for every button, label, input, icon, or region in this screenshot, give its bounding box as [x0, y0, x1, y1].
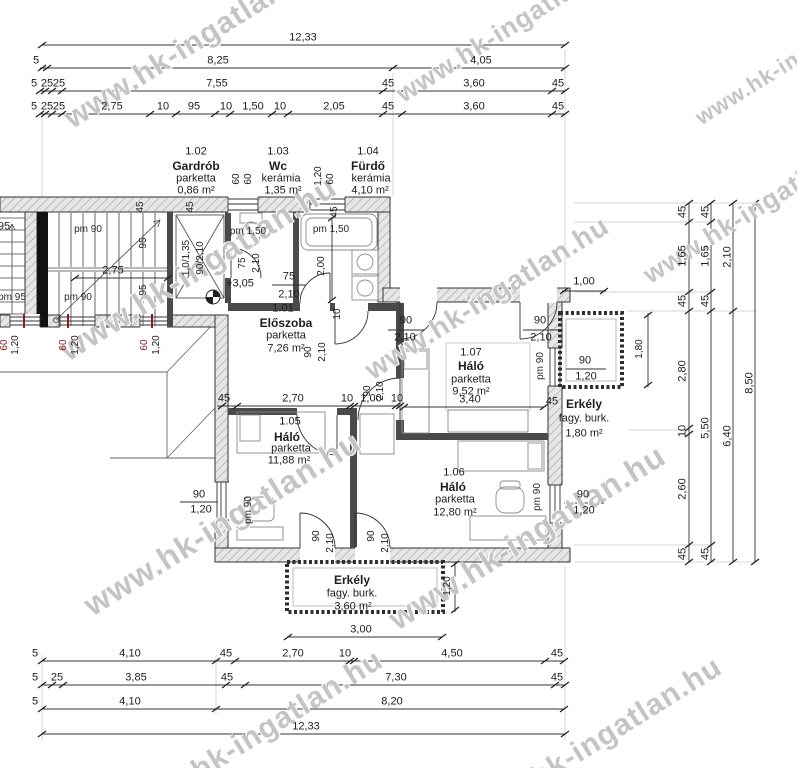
windows [10, 197, 562, 523]
roof-outline [0, 322, 215, 458]
floor-plan-page: www.hk-ingatlan.huwww.hk-ingatlan.huwww.… [0, 0, 797, 768]
floor-plan-drawing [0, 0, 797, 768]
balconies [287, 313, 622, 612]
wall-openings [10, 196, 563, 563]
exterior-walls [0, 197, 570, 562]
party-wall [37, 212, 48, 327]
level-marker-icon [206, 290, 220, 304]
